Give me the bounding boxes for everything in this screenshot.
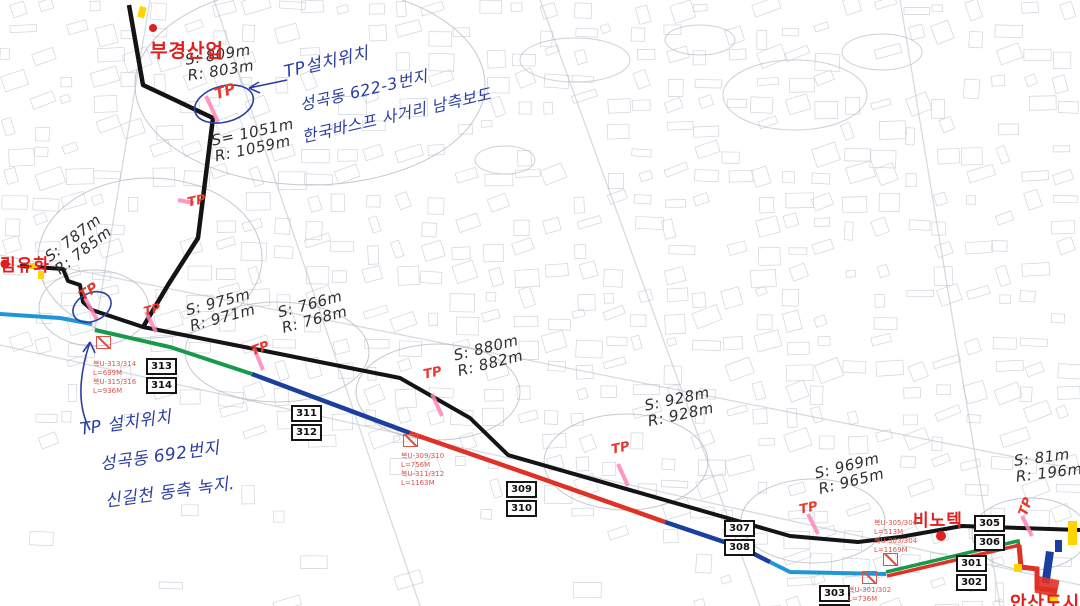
- cable-line: 복U-315/316: [93, 378, 136, 387]
- cable-hatch-symbol: [862, 571, 877, 584]
- marker-number: 311: [291, 405, 322, 422]
- marker-number: 303: [819, 585, 850, 602]
- marker-number: 310: [506, 500, 537, 517]
- route-marker-303-304: 303 304: [819, 585, 850, 606]
- cable-line: 복U-305/306: [874, 519, 917, 528]
- route-marker-301-302: 301 302: [956, 555, 987, 593]
- marker-number: 313: [146, 358, 177, 375]
- route-marker-311-312: 311 312: [291, 405, 322, 443]
- cable-label-301: 복U-301/302 L=736M: [848, 586, 891, 604]
- cable-line: 복U-309/310: [401, 452, 444, 461]
- cable-hatch-symbol: [403, 434, 418, 447]
- cable-line: L=699M: [93, 369, 136, 378]
- note-arrow-north: [249, 80, 287, 93]
- route-marker-305-306: 305 306: [974, 515, 1005, 553]
- marker-number: 309: [506, 481, 537, 498]
- cable-line: 복U-301/302: [848, 586, 891, 595]
- site-label-limyuhwa: 림유화: [0, 251, 50, 276]
- route-plan-map: S: 809m R: 803m S= 1051m R: 1059m S: 787…: [0, 0, 1080, 606]
- marker-number: 301: [956, 555, 987, 572]
- cable-label-313: 복U-313/314 L=699M 복U-315/316 L=936M: [93, 360, 136, 396]
- marker-number: 314: [146, 377, 177, 394]
- route-marker-307-308: 307 308: [724, 520, 755, 558]
- cable-line: 복U-303/304: [874, 537, 917, 546]
- marker-number: 307: [724, 520, 755, 537]
- cable-line: 복U-313/314: [93, 360, 136, 369]
- cable-line: L=936M: [93, 387, 136, 396]
- marker-number: 302: [956, 574, 987, 591]
- marker-number: 312: [291, 424, 322, 441]
- site-label-bukyung: 부경산업: [150, 36, 224, 63]
- route-marker-309-310: 309 310: [506, 481, 537, 519]
- marker-number: 305: [974, 515, 1005, 532]
- cable-hatch-symbol: [96, 336, 111, 349]
- cable-label-305: 복U-305/306 L=513M 복U-303/304 L=1169M: [874, 519, 917, 555]
- cable-line: L=1169M: [874, 546, 917, 555]
- site-label-binotek: 비노텍: [913, 506, 963, 531]
- marker-number: 306: [974, 534, 1005, 551]
- cable-line: L=736M: [848, 595, 891, 604]
- cable-line: L=513M: [874, 528, 917, 537]
- site-label-ansan: 안산도시개: [1010, 589, 1080, 606]
- measurement-8: S: 81m R: 196m: [1013, 445, 1080, 485]
- route-marker-313-314: 313 314: [146, 358, 177, 396]
- cable-line: L=756M: [401, 461, 444, 470]
- route-segment-navy-1: [252, 374, 410, 433]
- cable-line: L=1163M: [401, 479, 444, 488]
- cable-label-309: 복U-309/310 L=756M 복U-311/312 L=1163M: [401, 452, 444, 488]
- marker-number: 308: [724, 539, 755, 556]
- cable-line: 복U-311/312: [401, 470, 444, 479]
